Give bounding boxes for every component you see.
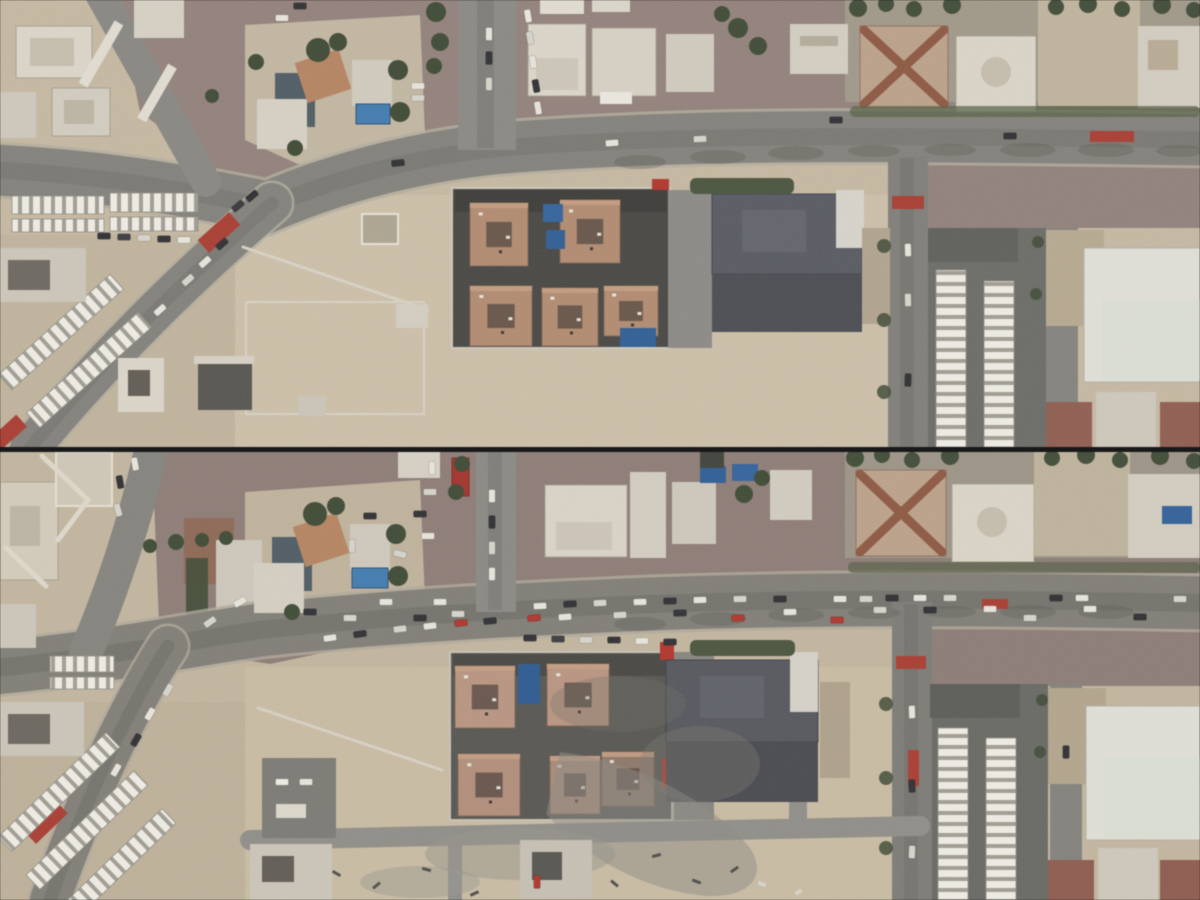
satellite-render-before (0, 0, 1200, 447)
render-root-before (0, 0, 1200, 447)
before-after-satellite-comparison (0, 0, 1200, 900)
satellite-render-after (0, 452, 1200, 900)
satellite-image-after (0, 452, 1200, 900)
render-root-after (0, 452, 1200, 900)
satellite-image-before (0, 0, 1200, 447)
image-grain-overlay (0, 452, 1200, 900)
image-grain-overlay (0, 0, 1200, 447)
